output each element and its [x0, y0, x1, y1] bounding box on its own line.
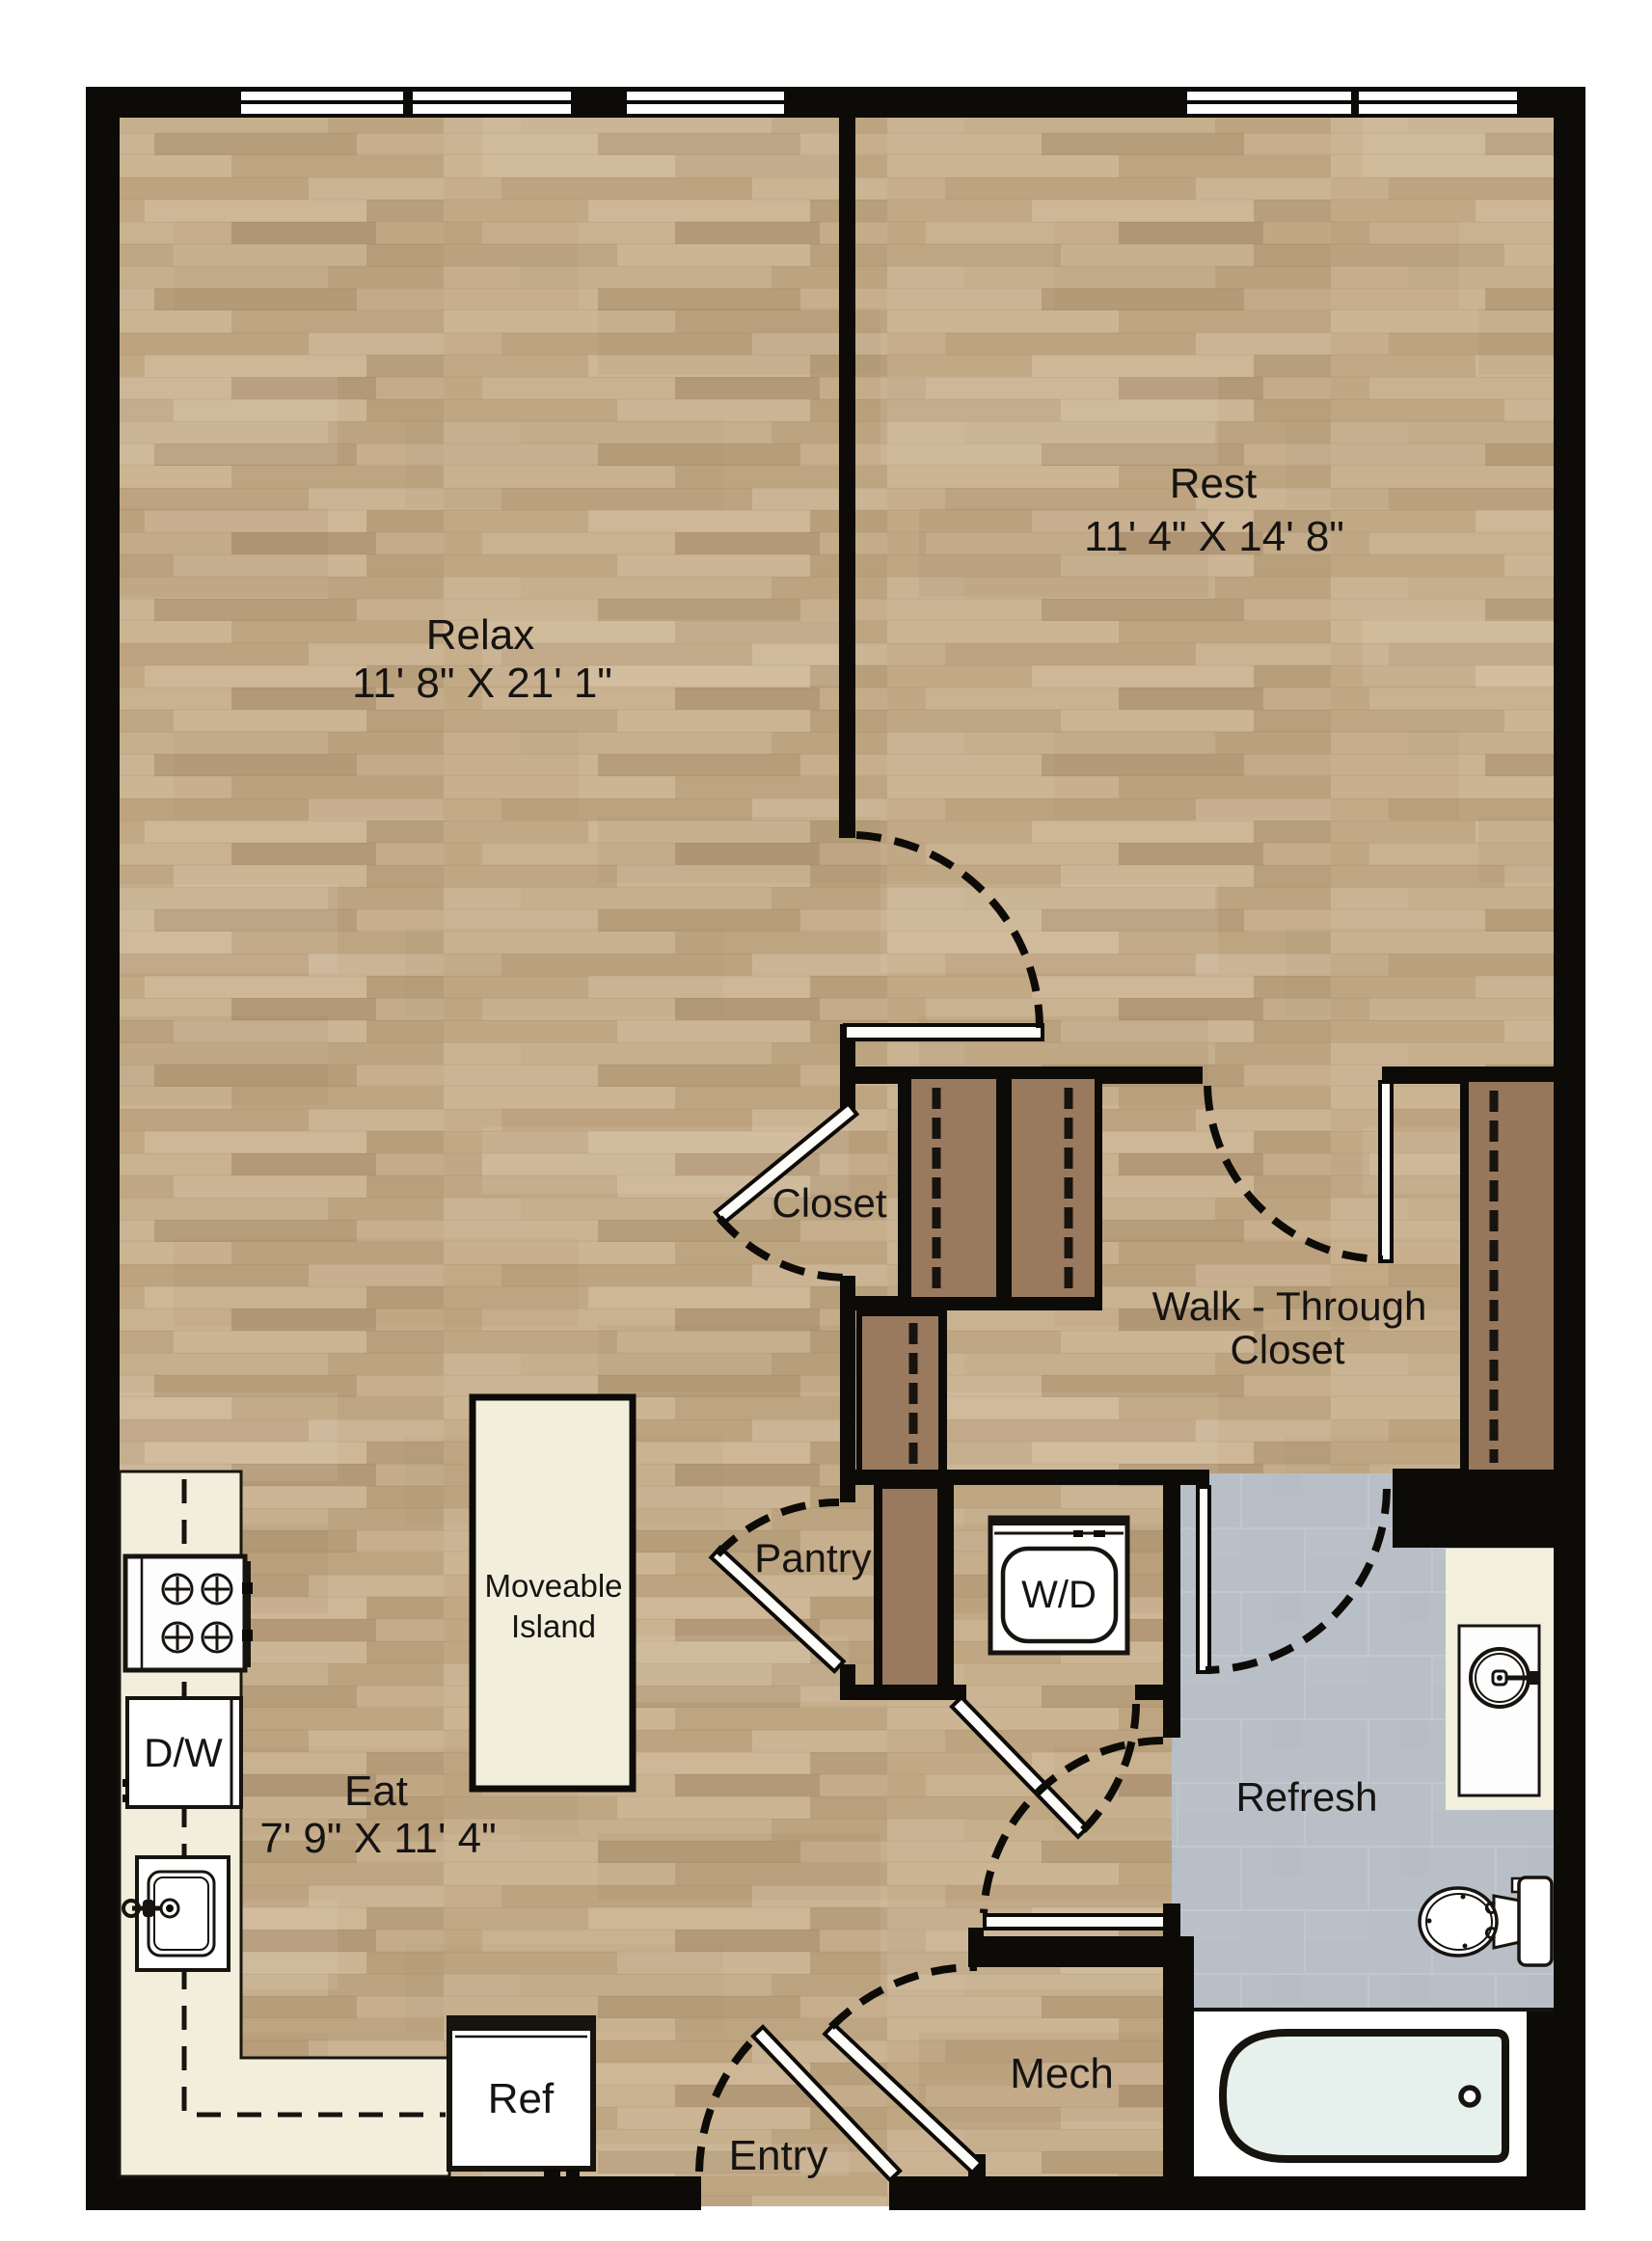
svg-text:Walk - Through: Walk - Through	[1152, 1283, 1427, 1329]
svg-text:11' 8" X 21' 1": 11' 8" X 21' 1"	[352, 660, 612, 707]
svg-text:Refresh: Refresh	[1235, 1774, 1377, 1820]
svg-text:7' 9" X 11' 4": 7' 9" X 11' 4"	[259, 1815, 496, 1862]
svg-text:Island: Island	[511, 1608, 596, 1644]
svg-text:Pantry: Pantry	[754, 1535, 871, 1580]
svg-text:Closet: Closet	[772, 1180, 886, 1226]
svg-text:Rest: Rest	[1170, 460, 1257, 507]
svg-text:Eat: Eat	[344, 1768, 408, 1815]
svg-text:11' 4" X 14' 8": 11' 4" X 14' 8"	[1084, 513, 1344, 560]
svg-text:Moveable: Moveable	[484, 1568, 622, 1604]
svg-text:Entry: Entry	[729, 2132, 828, 2179]
svg-text:Relax: Relax	[426, 611, 535, 659]
svg-text:D/W: D/W	[144, 1730, 223, 1775]
svg-text:Ref: Ref	[488, 2075, 555, 2122]
svg-text:Closet: Closet	[1230, 1327, 1344, 1372]
svg-text:W/D: W/D	[1021, 1574, 1097, 1616]
svg-text:Mech: Mech	[1010, 2050, 1114, 2097]
